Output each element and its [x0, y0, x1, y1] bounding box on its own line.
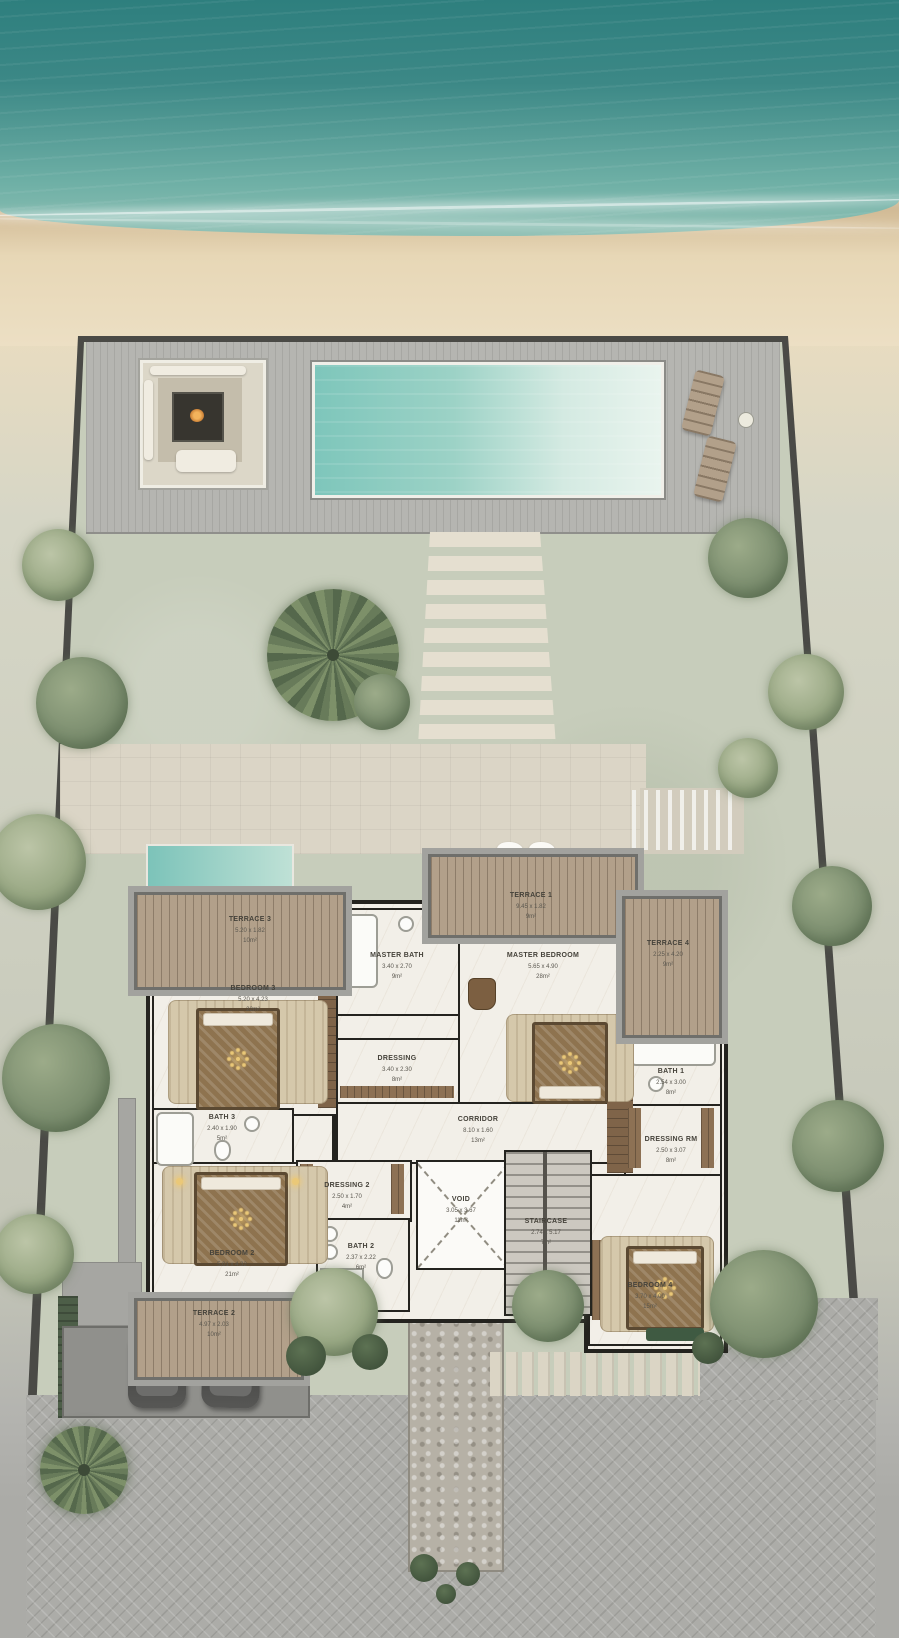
side-table	[738, 412, 754, 428]
bush	[692, 1332, 724, 1364]
master-sink-1	[398, 916, 414, 932]
room-label-master-bath: MASTER BATH3.40 x 2.709m²	[370, 950, 424, 982]
stepping-stone-path	[418, 532, 558, 746]
tree	[22, 529, 94, 601]
planter	[410, 1554, 438, 1582]
outdoor-sofa	[150, 366, 246, 375]
stone-patio	[60, 744, 646, 854]
timber-walkway	[490, 1352, 700, 1396]
pergola-slats	[632, 790, 734, 850]
bush	[352, 1334, 388, 1370]
tree	[512, 1270, 584, 1342]
site-plan-rendering: TERRACE 35.20 x 1.8210m² BEDROOM 35.20 x…	[0, 0, 899, 1638]
bedroom-3-bed	[196, 1008, 280, 1110]
room-label-corridor: CORRIDOR8.10 x 1.6013m²	[458, 1114, 499, 1146]
tree	[2, 1024, 110, 1132]
room-label-dressing: DRESSING3.40 x 2.308m²	[378, 1053, 417, 1085]
room-label-bath-2: BATH 22.37 x 2.226m²	[346, 1241, 376, 1273]
room-label-staircase: STAIRCASE2.74 x 5.177m²	[525, 1216, 568, 1248]
bath-1-tub	[630, 1034, 716, 1066]
room-label-master-bedroom: MASTER BEDROOM5.65 x 4.9028m²	[507, 950, 579, 982]
master-bedroom-bed	[532, 1022, 608, 1104]
tree	[708, 518, 788, 598]
bath-3-tub	[156, 1112, 194, 1166]
room-label-bedroom-4: BEDROOM 43.70 x 4.0915m²	[627, 1280, 672, 1312]
bedroom-2-lamp-right	[292, 1178, 299, 1185]
room-label-bath-3: BATH 32.40 x 1.905m²	[207, 1112, 237, 1144]
room-label-bedroom-2: BEDROOM 25.01 x 4.3221m²	[209, 1248, 254, 1280]
room-label-dressing-2: DRESSING 22.50 x 1.704m²	[324, 1180, 369, 1212]
room-label-void: VOID3.05 x 3.6711m²	[446, 1194, 476, 1226]
dressing-rm-wardrobe-right	[701, 1108, 714, 1168]
outdoor-sofa-2	[144, 380, 153, 460]
room-label-terrace-4: TERRACE 42.25 x 4.209m²	[647, 938, 689, 970]
daybed	[176, 450, 236, 472]
swimming-pool	[312, 362, 664, 498]
palm-tree-2	[40, 1426, 128, 1514]
tree	[36, 657, 128, 749]
room-label-terrace-2: TERRACE 24.97 x 2.0310m²	[193, 1308, 235, 1340]
room-label-dressing-rm: DRESSING RM2.50 x 3.078m²	[645, 1134, 698, 1166]
room-label-bath-1: BATH 12.54 x 3.008m²	[656, 1066, 686, 1098]
planter	[456, 1562, 480, 1586]
tree	[710, 1250, 818, 1358]
room-label-terrace-3: TERRACE 35.20 x 1.8210m²	[229, 914, 271, 946]
bath-2-toilet	[376, 1258, 393, 1279]
planter	[436, 1584, 456, 1604]
dressing-wardrobe	[340, 1086, 454, 1098]
tree	[354, 674, 410, 730]
tree	[792, 866, 872, 946]
dressing-2-wardrobe-right	[391, 1164, 404, 1214]
fire-glow	[190, 409, 204, 422]
master-armchair	[468, 978, 496, 1010]
bath-3-sink	[244, 1116, 260, 1132]
room-label-terrace-1: TERRACE 19.45 x 1.829m²	[510, 890, 552, 922]
bush	[286, 1336, 326, 1376]
tree	[718, 738, 778, 798]
tree	[792, 1100, 884, 1192]
room-label-bedroom-3: BEDROOM 35.20 x 4.2322m²	[230, 983, 275, 1015]
tree	[768, 654, 844, 730]
dressing-rm-wardrobe-left	[628, 1108, 641, 1168]
bedroom-2-lamp-left	[176, 1178, 183, 1185]
